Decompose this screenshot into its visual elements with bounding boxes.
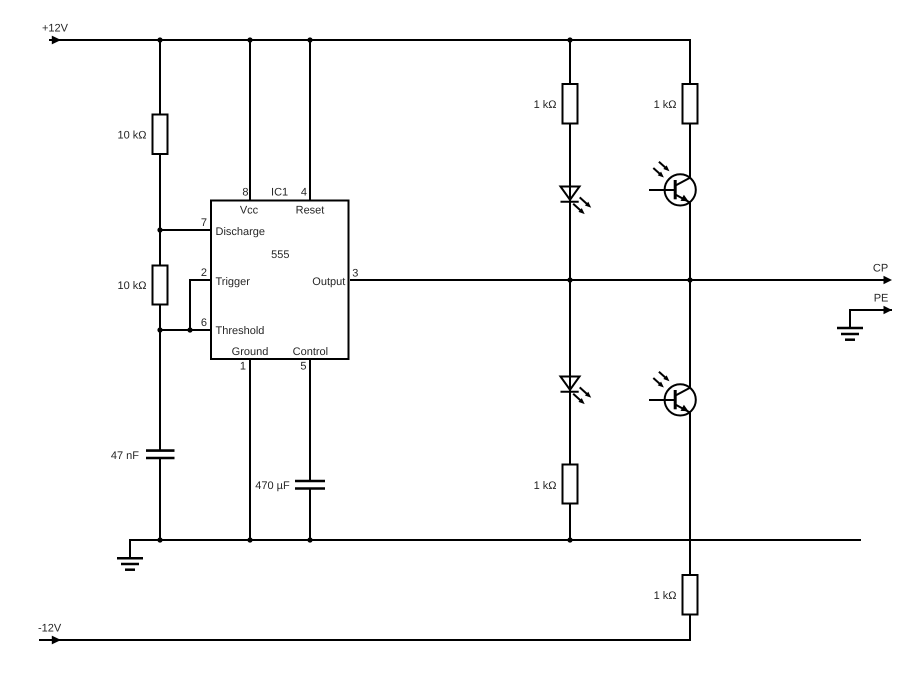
svg-text:Discharge: Discharge — [216, 226, 266, 238]
svg-text:47 nF: 47 nF — [111, 450, 139, 462]
svg-text:1 kΩ: 1 kΩ — [654, 590, 677, 602]
svg-text:1 kΩ: 1 kΩ — [534, 99, 557, 111]
svg-text:Ground: Ground — [232, 346, 269, 358]
svg-text:555: 555 — [271, 249, 289, 261]
svg-text:10 kΩ: 10 kΩ — [117, 280, 146, 292]
svg-text:1: 1 — [240, 361, 246, 373]
svg-text:Reset: Reset — [296, 205, 325, 217]
svg-text:2: 2 — [201, 267, 207, 279]
svg-text:7: 7 — [201, 217, 207, 229]
svg-text:10 kΩ: 10 kΩ — [117, 130, 146, 142]
svg-text:6: 6 — [201, 317, 207, 329]
svg-text:Output: Output — [312, 276, 345, 288]
svg-text:5: 5 — [300, 361, 306, 373]
svg-text:3: 3 — [352, 268, 358, 280]
svg-text:PE: PE — [874, 293, 889, 305]
svg-text:IC1: IC1 — [271, 187, 288, 199]
svg-text:Trigger: Trigger — [216, 276, 251, 288]
svg-text:Vcc: Vcc — [240, 205, 259, 217]
svg-text:CP: CP — [873, 263, 888, 275]
svg-text:470 µF: 470 µF — [255, 480, 290, 492]
svg-text:-12V: -12V — [38, 623, 62, 635]
svg-text:8: 8 — [242, 187, 248, 199]
svg-text:Threshold: Threshold — [216, 325, 265, 337]
svg-text:+12V: +12V — [42, 23, 69, 35]
svg-text:Control: Control — [293, 346, 328, 358]
svg-text:1 kΩ: 1 kΩ — [534, 480, 557, 492]
svg-text:1 kΩ: 1 kΩ — [654, 99, 677, 111]
svg-text:4: 4 — [301, 187, 307, 199]
